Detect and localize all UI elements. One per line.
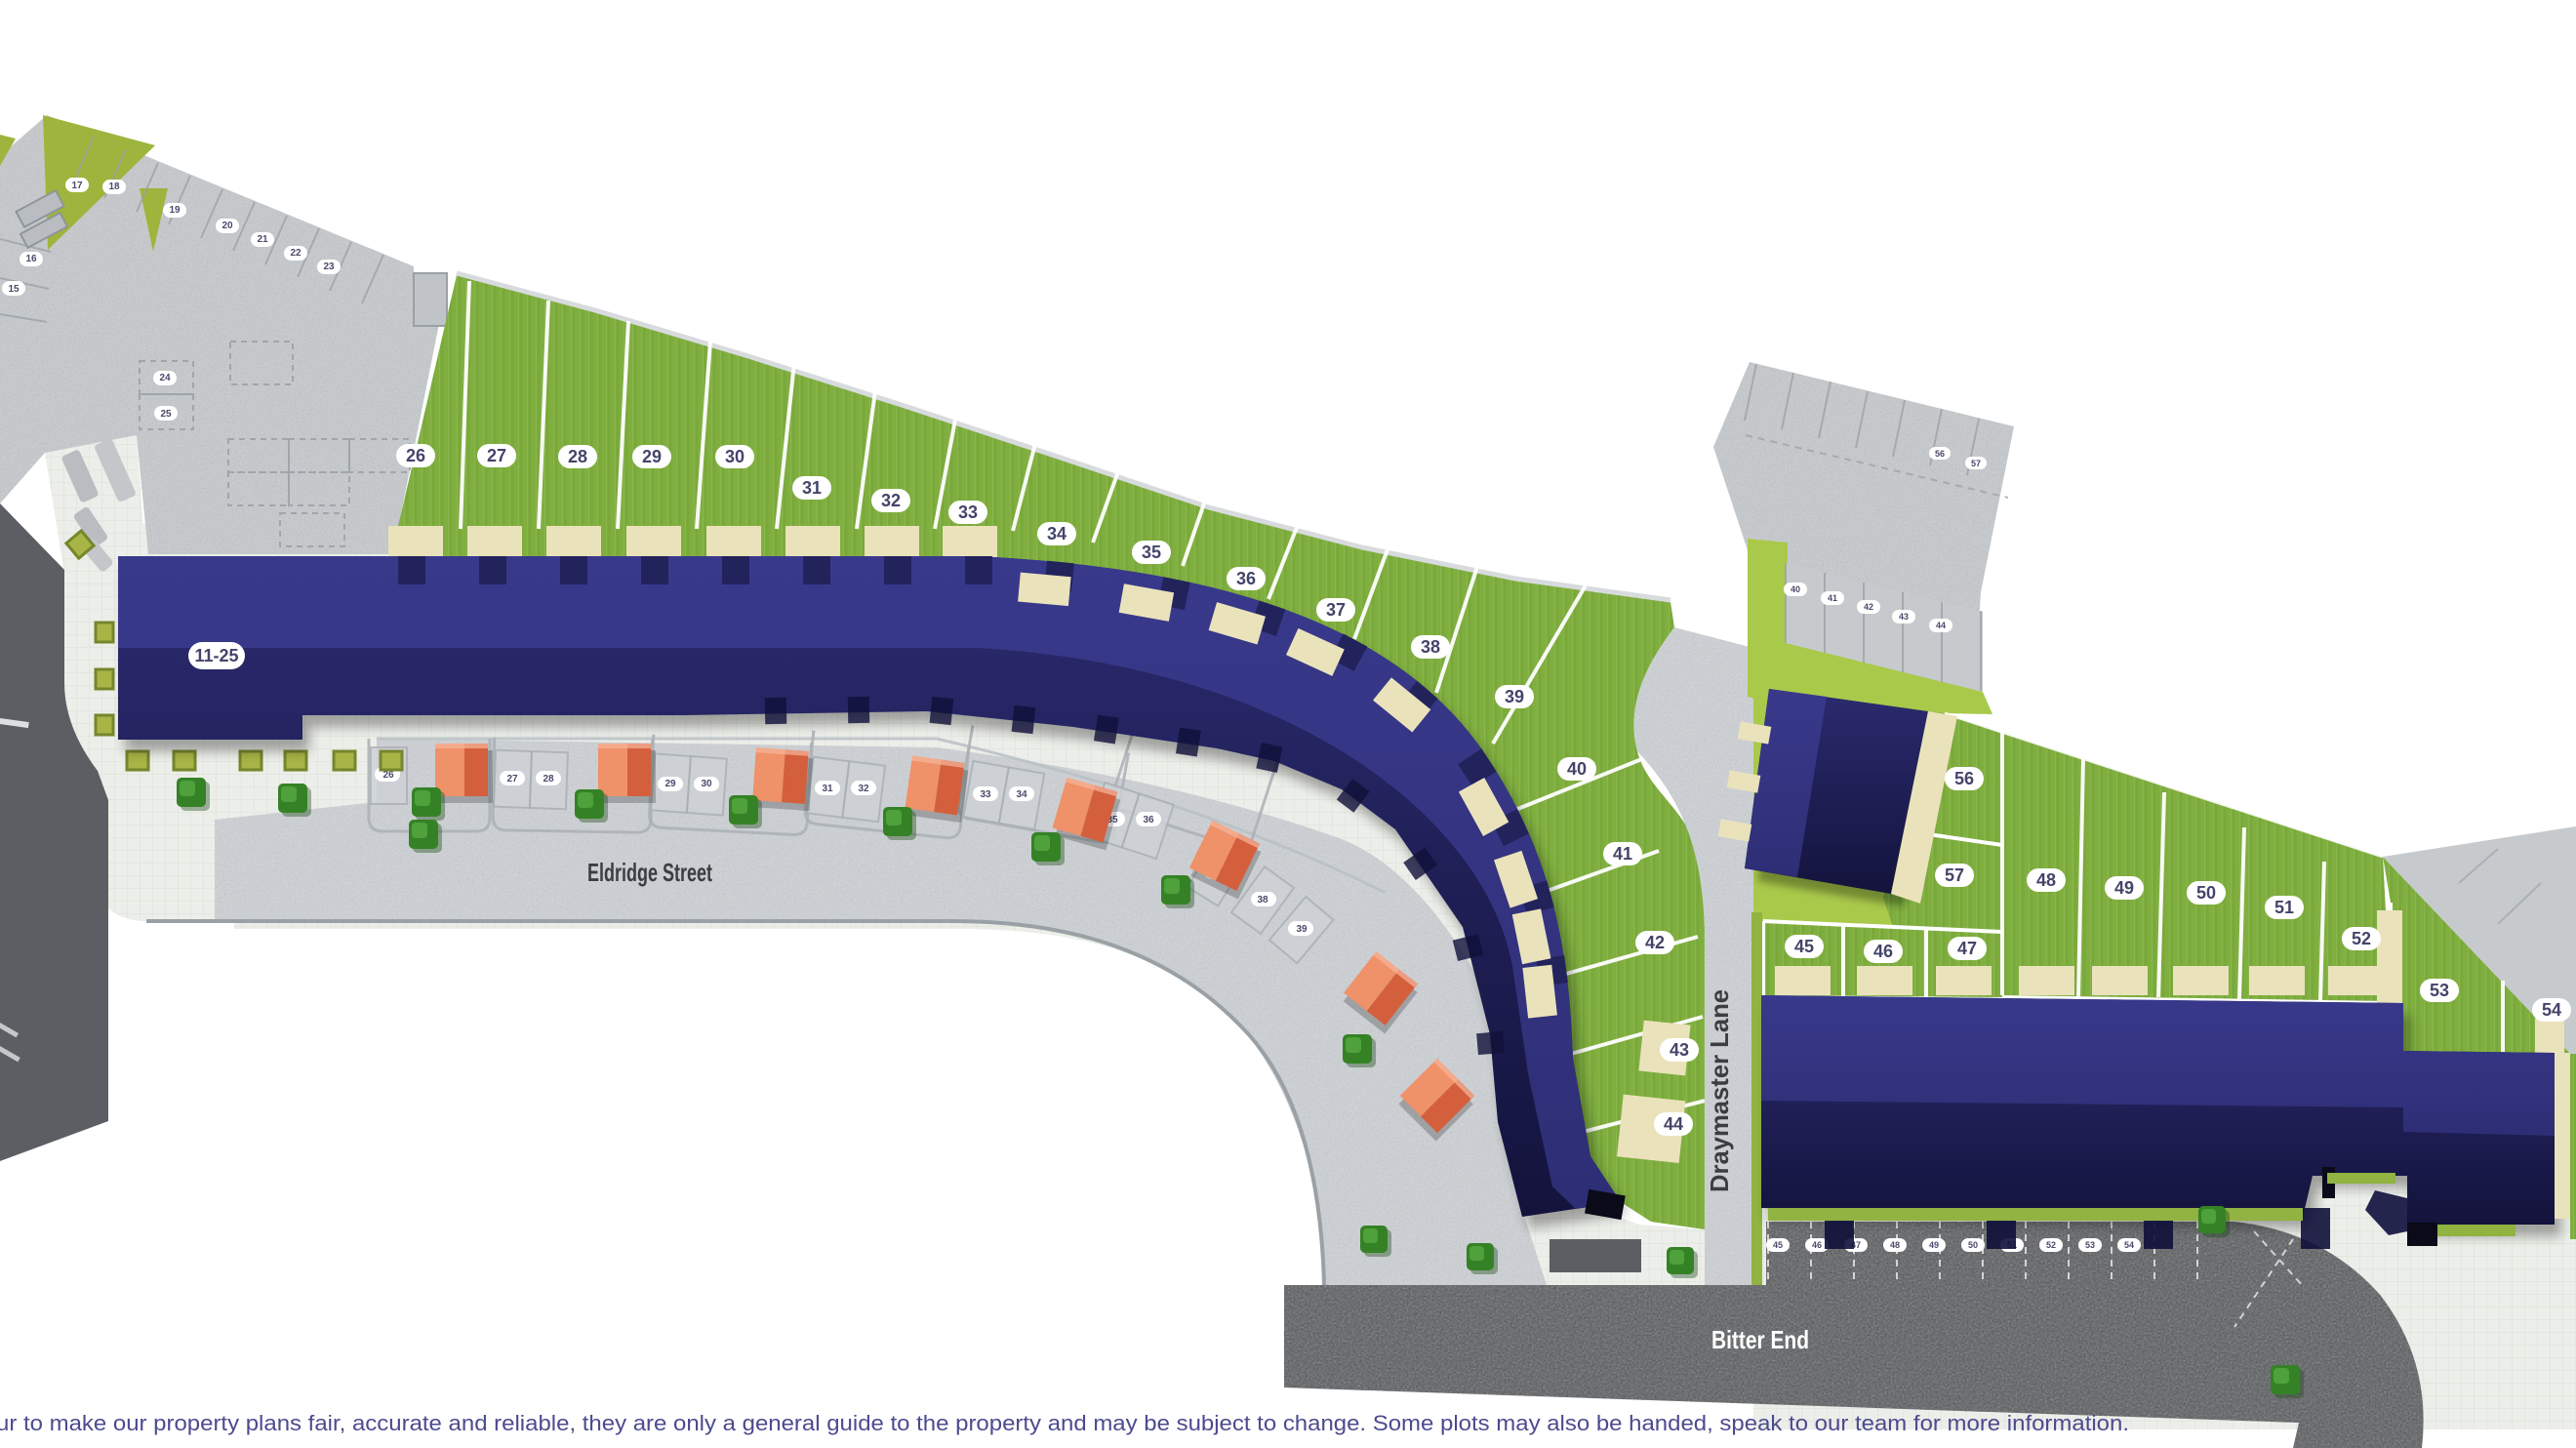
svg-text:36: 36 [1143,815,1154,825]
svg-text:17: 17 [71,181,83,191]
svg-text:57: 57 [1945,865,1964,885]
svg-text:33: 33 [958,503,978,522]
svg-text:34: 34 [1047,524,1067,543]
svg-text:27: 27 [506,774,518,784]
svg-text:Eldridge Street: Eldridge Street [587,858,712,887]
svg-text:52: 52 [2046,1240,2056,1250]
svg-text:20: 20 [221,221,233,231]
svg-text:32: 32 [858,784,869,794]
svg-text:42: 42 [1645,933,1665,952]
svg-text:57: 57 [1971,459,1981,468]
svg-text:44: 44 [1664,1114,1683,1134]
svg-text:34: 34 [1016,789,1027,800]
svg-text:39: 39 [1296,924,1308,935]
svg-text:50: 50 [1968,1240,1978,1250]
svg-text:49: 49 [2114,878,2134,898]
svg-text:39: 39 [1505,687,1524,706]
svg-text:26: 26 [382,770,394,781]
svg-text:27: 27 [487,446,506,465]
svg-text:45: 45 [1794,937,1814,956]
svg-text:38: 38 [1257,895,1268,905]
svg-text:33: 33 [980,789,991,800]
svg-text:44: 44 [1936,621,1946,630]
svg-text:18: 18 [108,181,120,192]
svg-text:29: 29 [642,447,662,466]
svg-text:23: 23 [323,261,335,272]
svg-text:31: 31 [822,784,833,794]
svg-text:37: 37 [1326,600,1346,620]
svg-text:26: 26 [406,446,425,465]
svg-text:54: 54 [2124,1240,2134,1250]
svg-text:22: 22 [290,248,302,259]
svg-text:54: 54 [2542,1000,2561,1020]
svg-text:48: 48 [1890,1240,1900,1250]
svg-text:49: 49 [1929,1240,1939,1250]
svg-text:46: 46 [1873,942,1893,961]
svg-text:40: 40 [1791,584,1800,594]
svg-text:46: 46 [1812,1240,1822,1250]
svg-text:16: 16 [25,254,37,264]
svg-text:48: 48 [2036,870,2056,890]
svg-text:Draymaster Lane: Draymaster Lane [1705,989,1734,1192]
svg-text:36: 36 [1236,569,1256,588]
svg-text:47: 47 [1957,939,1977,958]
svg-text:38: 38 [1421,637,1440,657]
svg-text:25: 25 [160,409,172,420]
svg-text:52: 52 [2352,929,2371,948]
svg-text:43: 43 [1899,612,1909,622]
svg-text:41: 41 [1613,844,1632,864]
svg-text:21: 21 [257,234,268,245]
svg-text:15: 15 [8,284,20,295]
svg-text:53: 53 [2085,1240,2095,1250]
svg-text:35: 35 [1142,543,1161,562]
svg-text:42: 42 [1864,602,1873,612]
svg-text:53: 53 [2430,981,2449,1000]
svg-text:19: 19 [169,205,181,216]
svg-text:11-25: 11-25 [194,646,238,665]
svg-text:28: 28 [568,447,587,466]
svg-text:30: 30 [725,447,745,466]
svg-text:Bitter End: Bitter End [1711,1325,1809,1354]
svg-text:32: 32 [881,491,901,510]
svg-text:ur to make our property plans: ur to make our property plans fair, accu… [0,1411,2129,1435]
svg-text:24: 24 [159,373,171,383]
svg-text:41: 41 [1828,593,1837,603]
svg-text:51: 51 [2274,898,2294,917]
svg-text:56: 56 [1954,769,1974,788]
svg-text:30: 30 [701,779,712,789]
svg-text:56: 56 [1935,449,1945,459]
svg-text:28: 28 [543,774,554,784]
svg-text:29: 29 [664,779,676,789]
svg-text:31: 31 [802,478,822,498]
svg-text:43: 43 [1670,1040,1689,1060]
svg-text:40: 40 [1567,759,1587,779]
svg-text:50: 50 [2196,883,2216,903]
svg-text:45: 45 [1773,1240,1783,1250]
